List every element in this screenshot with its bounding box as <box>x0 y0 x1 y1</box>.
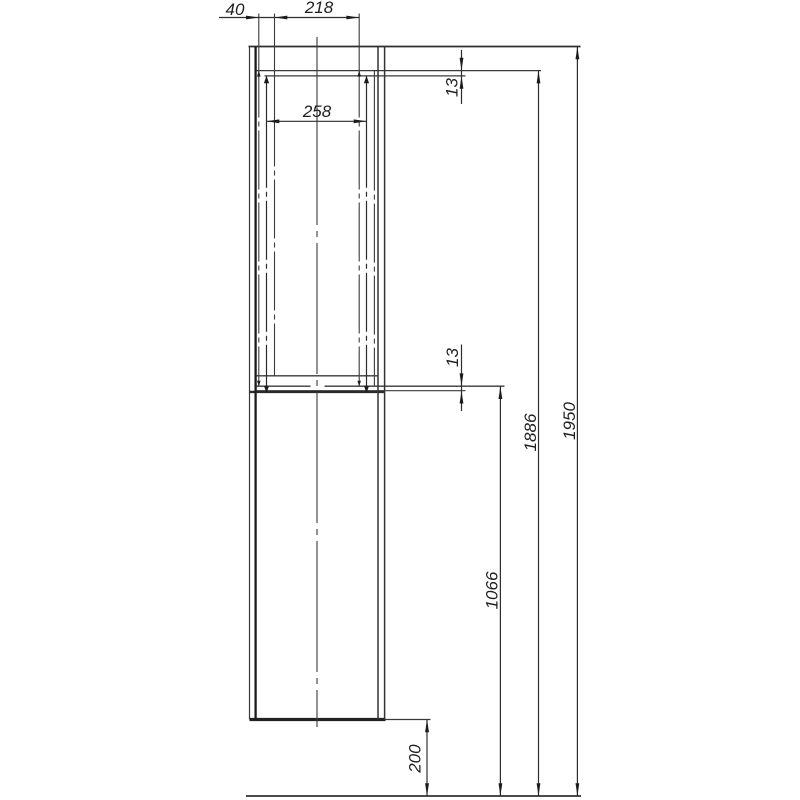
svg-text:258: 258 <box>302 102 332 121</box>
svg-text:40: 40 <box>226 0 245 19</box>
svg-text:13: 13 <box>443 348 462 367</box>
svg-text:13: 13 <box>443 78 462 97</box>
svg-text:200: 200 <box>406 744 425 774</box>
svg-text:218: 218 <box>304 0 334 17</box>
svg-text:1066: 1066 <box>483 571 502 609</box>
svg-text:1886: 1886 <box>521 413 540 451</box>
svg-text:1950: 1950 <box>560 402 579 440</box>
